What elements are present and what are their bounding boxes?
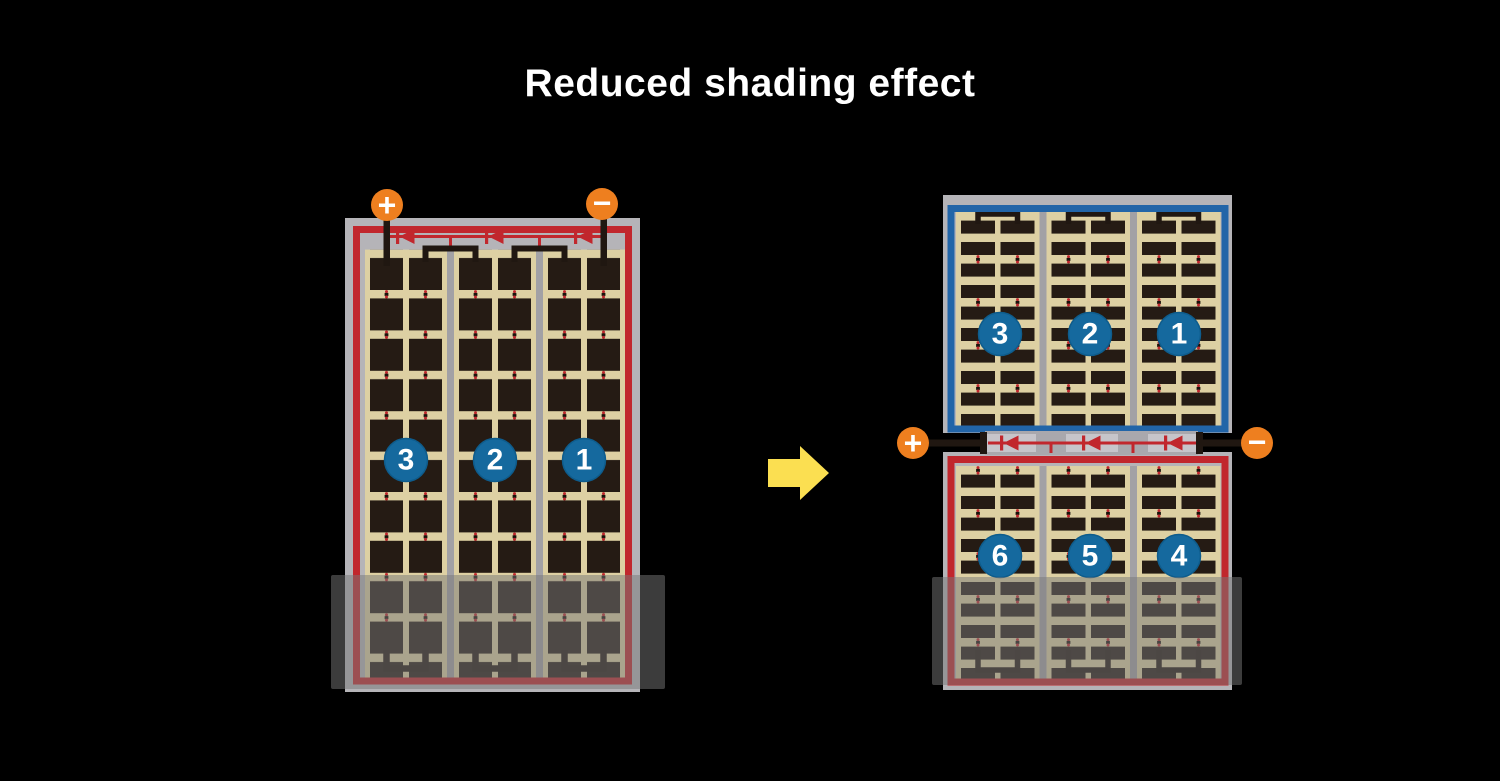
string-badge-label: 5 <box>1082 540 1099 573</box>
shading-overlay-after <box>932 577 1242 685</box>
junction-bar <box>929 431 1242 455</box>
positive-terminal-label: + <box>904 425 923 461</box>
string-badge-label: 1 <box>576 444 593 477</box>
module-after: 3 2 1 6 5 4 <box>897 195 1273 690</box>
negative-terminal-label: − <box>1248 424 1267 460</box>
diagram-canvas: 3 2 1 + − 3 2 1 6 <box>0 0 1500 781</box>
string-badge-label: 6 <box>992 540 1009 573</box>
string-badge-label: 2 <box>1082 318 1099 351</box>
string-badge-label: 1 <box>1171 318 1188 351</box>
module-before: 3 2 1 + − <box>331 185 665 692</box>
string-badge-label: 3 <box>398 444 415 477</box>
string-badge-label: 4 <box>1171 540 1188 573</box>
string-badge-label: 2 <box>487 444 504 477</box>
negative-terminal-label: − <box>593 185 612 221</box>
right-arrow-icon <box>768 446 829 500</box>
shading-overlay-before <box>331 575 665 689</box>
positive-terminal-label: + <box>378 187 397 223</box>
string-badge-label: 3 <box>992 318 1009 351</box>
